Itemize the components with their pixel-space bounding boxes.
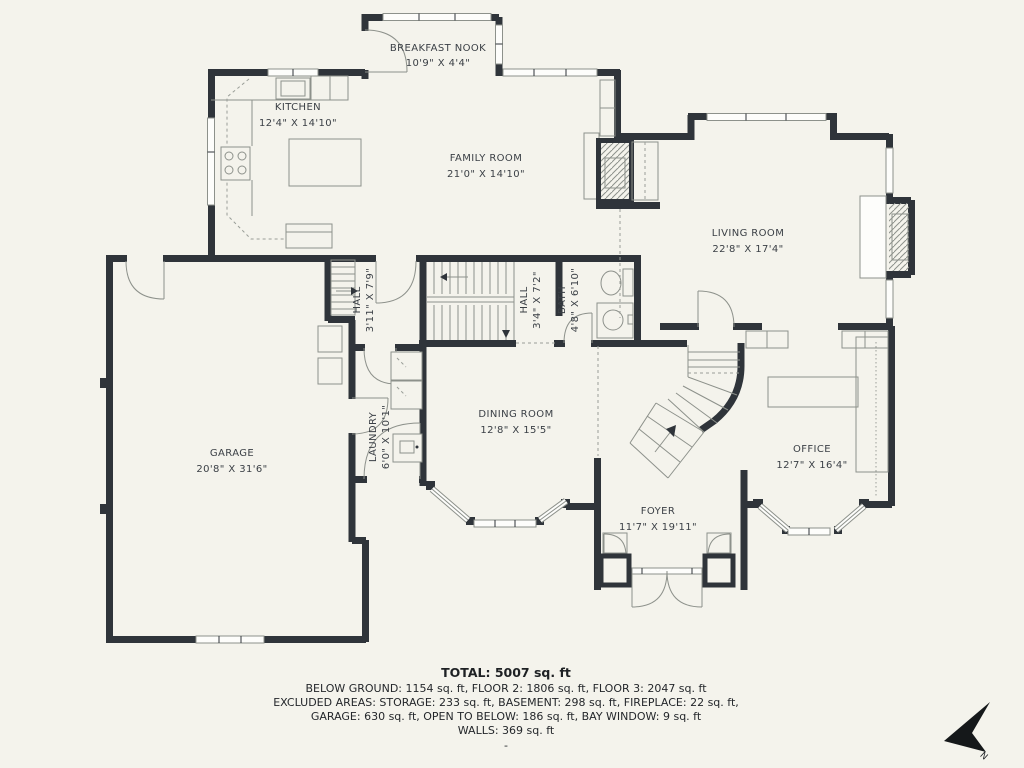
summary-total: TOTAL: 5007 sq. ft: [441, 665, 571, 680]
kitchen-island: [289, 139, 361, 186]
room-label-breakfast-nook: BREAKFAST NOOK: [390, 43, 486, 54]
window: [196, 636, 264, 643]
window: [707, 114, 826, 121]
toilet: [601, 269, 633, 296]
bay-window: [474, 520, 536, 527]
laundry-fixtures: [391, 352, 422, 462]
window: [208, 118, 215, 205]
stove: [221, 147, 250, 180]
room-dims-family-room: 21'0" X 14'10": [447, 169, 525, 180]
window: [383, 14, 491, 21]
room-dims-hall-upper: 3'11" X 7'9": [365, 268, 376, 333]
dryer: [391, 381, 422, 409]
bath-fixtures: [597, 269, 633, 338]
room-label-bath: BATH: [557, 286, 568, 314]
room-dims-hall-center: 3'4" X 7'2": [532, 271, 543, 329]
fireplace-hearth: [860, 196, 886, 278]
summary-line-3: GARAGE: 630 sq. ft, OPEN TO BELOW: 186 s…: [311, 710, 702, 723]
summary-line-2: EXCLUDED AREAS: STORAGE: 233 sq. ft, BAS…: [273, 696, 739, 709]
laundry-sink: [393, 434, 422, 462]
room-label-foyer: FOYER: [641, 506, 675, 517]
kitchen-peninsula: [286, 224, 332, 248]
window: [886, 280, 893, 318]
window: [503, 69, 597, 76]
background: [0, 0, 1024, 768]
summary-line-4: WALLS: 369 sq. ft: [458, 724, 555, 737]
bath-sink: [597, 303, 633, 338]
room-dims-kitchen: 12'4" X 14'10": [259, 118, 337, 129]
summary-dash: -: [504, 739, 508, 752]
bay-window: [788, 528, 830, 535]
room-dims-bath: 4'8" X 6'10": [570, 268, 581, 333]
room-label-kitchen: KITCHEN: [275, 102, 321, 113]
room-dims-office: 12'7" X 16'4": [776, 460, 847, 471]
room-dims-living-room: 22'8" X 17'4": [712, 244, 783, 255]
washer: [391, 352, 422, 380]
room-label-hall-upper: HALL: [352, 286, 363, 313]
room-label-dining-room: DINING ROOM: [478, 409, 553, 420]
room-label-laundry: LAUNDRY: [368, 411, 379, 462]
room-label-hall-center: HALL: [519, 286, 530, 313]
room-label-office: OFFICE: [793, 444, 831, 455]
living-room-fireplace: [860, 196, 909, 278]
room-dims-dining-room: 12'8" X 15'5": [480, 425, 551, 436]
room-dims-breakfast-nook: 10'9" X 4'4": [406, 58, 471, 69]
floor-plan-canvas: BREAKFAST NOOK 10'9" X 4'4" KITCHEN 12'4…: [0, 0, 1024, 768]
summary-line-1: BELOW GROUND: 1154 sq. ft, FLOOR 2: 1806…: [305, 682, 707, 695]
window: [496, 25, 503, 64]
room-dims-foyer: 11'7" X 19'11": [619, 522, 697, 533]
room-dims-garage: 20'8" X 31'6": [196, 464, 267, 475]
window: [268, 69, 318, 76]
room-dims-laundry: 6'0" X 10'1": [381, 405, 392, 470]
room-label-living-room: LIVING ROOM: [712, 228, 784, 239]
window: [886, 148, 893, 193]
room-label-family-room: FAMILY ROOM: [450, 153, 523, 164]
room-label-garage: GARAGE: [210, 448, 254, 459]
